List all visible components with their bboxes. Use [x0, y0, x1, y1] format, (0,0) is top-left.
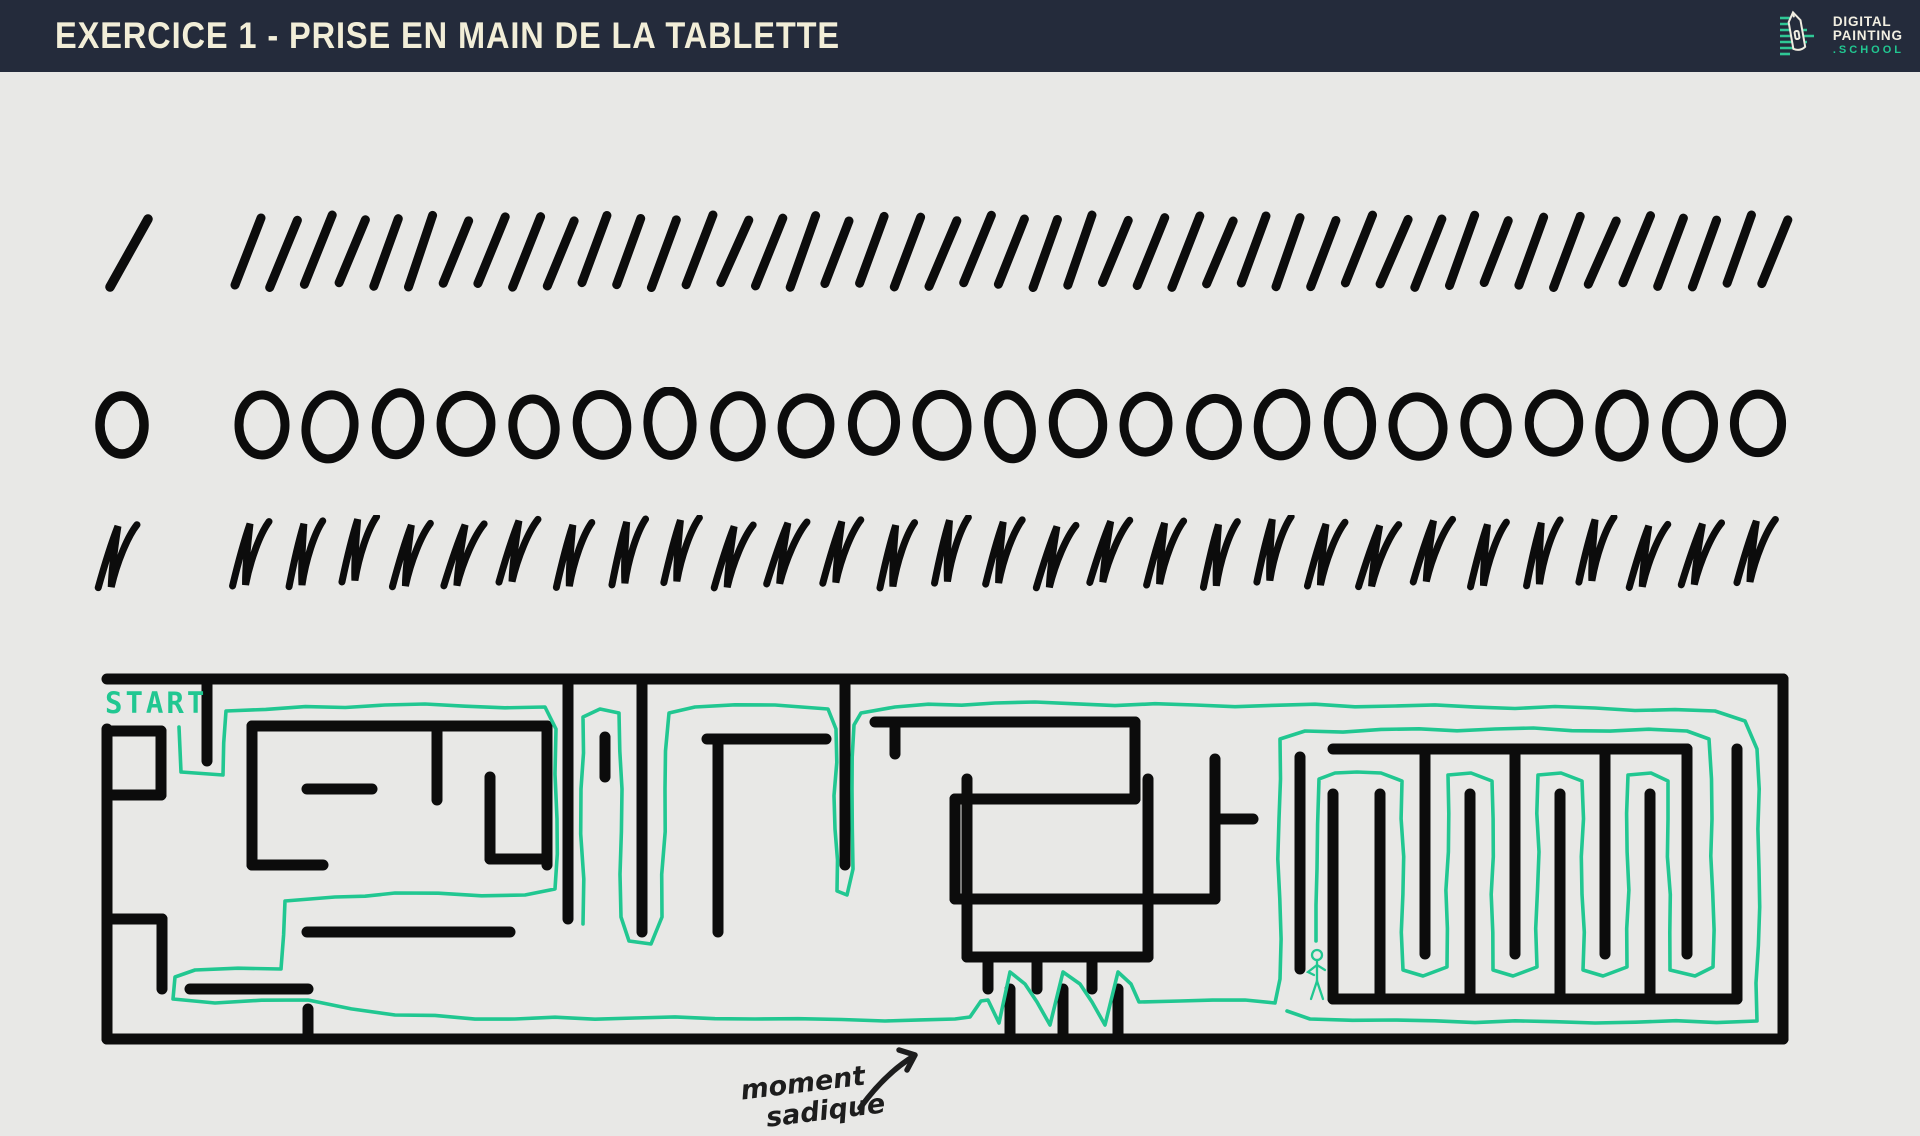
- stylus-logo-icon: [1778, 10, 1824, 62]
- brand-line-2: PAINTING: [1833, 29, 1904, 43]
- circle-strokes-row: [0, 387, 1920, 465]
- header-bar: EXERCICE 1 - PRISE EN MAIN DE LA TABLETT…: [0, 0, 1920, 72]
- drawing-canvas[interactable]: START moment sadique: [0, 72, 1920, 1080]
- maze-start-label: START: [105, 686, 207, 720]
- brand-line-school: .SCHOOL: [1833, 45, 1904, 57]
- pen-icon: [1787, 11, 1805, 51]
- annotation-arrow-icon: [854, 1042, 934, 1114]
- brand-text: DIGITAL PAINTING .SCHOOL: [1833, 15, 1904, 57]
- n-strokes-row: [0, 515, 1920, 593]
- brand-logo: DIGITAL PAINTING .SCHOOL: [1778, 8, 1904, 64]
- stick-figure-icon: [1308, 950, 1325, 999]
- brand-line-1: DIGITAL: [1833, 15, 1904, 29]
- slash-strokes-row: [0, 207, 1920, 292]
- maze-drawing: START: [95, 669, 1795, 1049]
- page-title: EXERCICE 1 - PRISE EN MAIN DE LA TABLETT…: [55, 15, 840, 57]
